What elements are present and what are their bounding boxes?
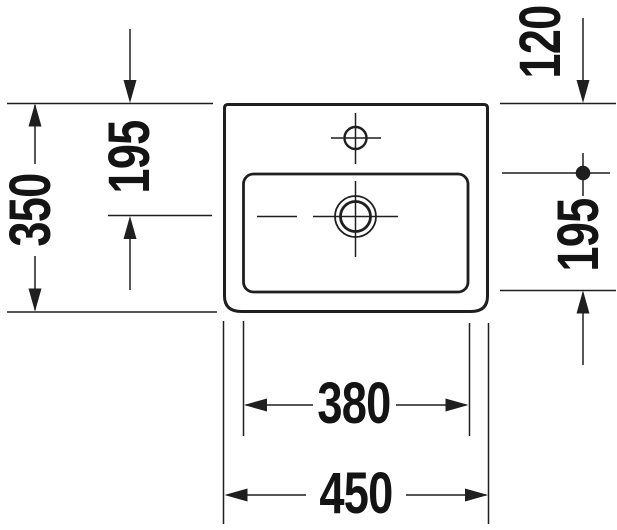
dimension-label-450: 450 <box>319 465 392 523</box>
dimension-label-380: 380 <box>317 375 390 433</box>
dimension-label-350: 350 <box>2 173 60 246</box>
reference-dot-icon <box>576 166 591 181</box>
arrowhead-up-icon <box>124 216 137 239</box>
arrowhead-right-icon <box>446 399 469 412</box>
arrowhead-down-icon <box>124 80 137 103</box>
arrowhead-left-icon <box>225 489 248 502</box>
dimension-label-120: 120 <box>512 5 570 78</box>
washbasin-technical-drawing: 350 195 120 195 380 450 <box>0 0 617 530</box>
dimension-120 <box>577 18 590 103</box>
dimension-label-195-left: 195 <box>101 120 159 193</box>
arrowhead-up-icon <box>29 104 42 127</box>
drawing-linework <box>0 0 617 530</box>
arrowhead-left-icon <box>244 399 267 412</box>
dimension-label-195-right: 195 <box>550 198 608 271</box>
arrowhead-down-icon <box>29 289 42 312</box>
arrowhead-down-icon <box>577 80 590 103</box>
arrowhead-right-icon <box>465 489 488 502</box>
arrowhead-up-icon <box>577 291 590 314</box>
